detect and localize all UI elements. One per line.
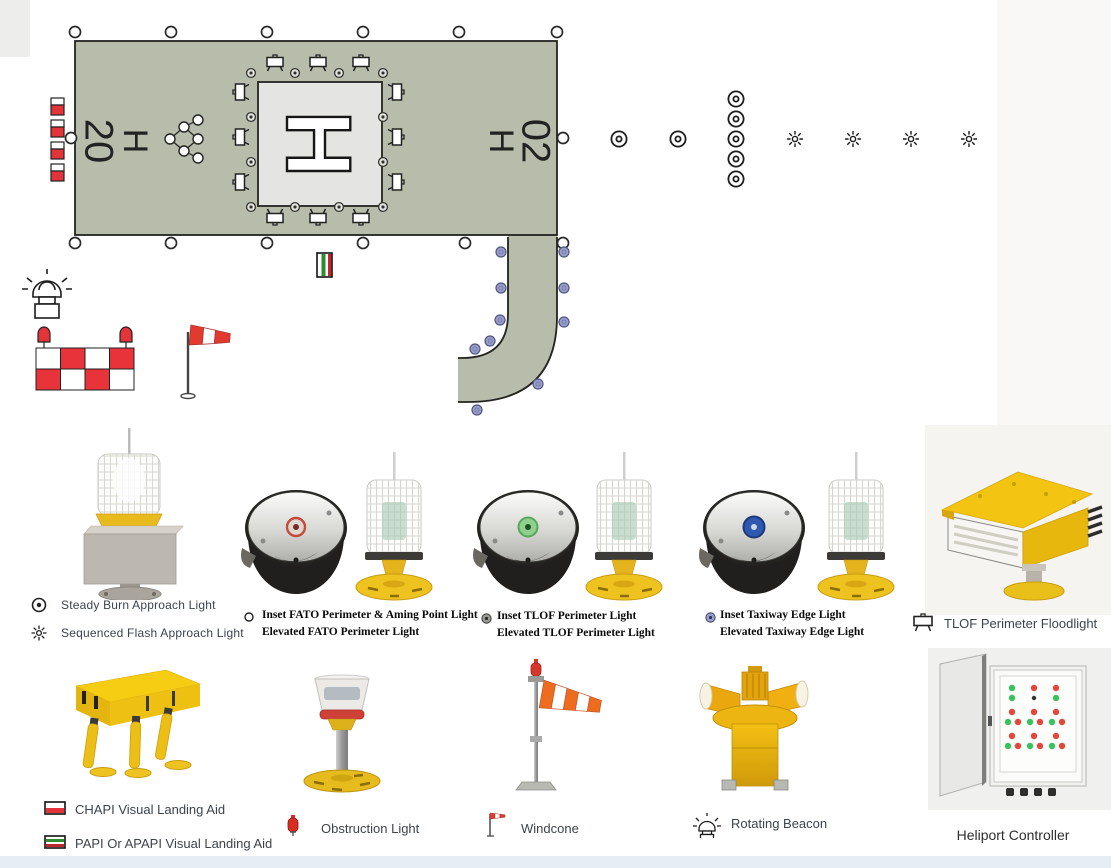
chapi-product-image	[48, 660, 218, 802]
legend-steady-burn: Steady Burn Approach Light	[30, 596, 216, 614]
legend-inset-taxiway-label: Inset Taxiway Edge Light	[720, 609, 846, 621]
tlof-pad: H	[258, 82, 382, 206]
steady-burn-approach-light-icon	[30, 596, 48, 614]
heliport-controller-product-image	[928, 650, 1098, 808]
inset-fato-light-icon	[243, 611, 255, 623]
tlof-floodlight-product-image	[928, 452, 1108, 612]
elevated-taxiway-light-product-image	[814, 452, 898, 604]
heliport-lighting-layout-page: H 20 H H 02	[0, 0, 1111, 868]
papi-unit-plan	[317, 253, 332, 277]
inset-tlof-light-icon	[480, 612, 493, 625]
legend-inset-tlof-label: Inset TLOF Perimeter Light	[497, 610, 636, 622]
floodlight-symbol-icon	[911, 613, 935, 633]
legend-papi-label: PAPI Or APAPI Visual Landing Aid	[75, 836, 272, 851]
elevated-fato-light-product-image	[352, 452, 436, 604]
legend-elevated-tlof-label: Elevated TLOF Perimeter Light	[497, 627, 655, 639]
windcone-product-image	[478, 656, 613, 811]
legend-rotating-beacon-label: Rotating Beacon	[731, 816, 827, 831]
legend-sequenced-flash-label: Sequenced Flash Approach Light	[61, 626, 244, 640]
inset-fato-light-product-image	[236, 478, 356, 604]
rotating-beacon-symbol	[22, 269, 72, 318]
elevated-tlof-light-product-image	[582, 452, 666, 604]
obstruction-light-product-image	[292, 668, 392, 798]
heliport-plan-diagram: H 20 H H 02	[0, 0, 1111, 430]
tlof-h-marking: H	[267, 111, 369, 177]
inset-tlof-light-product-image	[468, 478, 588, 604]
windsock-icon	[486, 810, 506, 840]
legend-chapi-label: CHAPI Visual Landing Aid	[75, 802, 225, 817]
barrier-obstruction-lights	[38, 327, 132, 348]
approach-light-product-image	[50, 428, 210, 600]
chapi-bars-plan	[51, 98, 64, 181]
legend-sequenced-flash: Sequenced Flash Approach Light	[30, 624, 244, 642]
legend-windcone-label: Windcone	[521, 821, 579, 836]
heading-02: 02	[514, 119, 558, 164]
rotating-beacon-icon	[692, 806, 722, 838]
windsock-plan	[181, 325, 231, 398]
heading-h-left: H	[116, 129, 154, 154]
sequenced-flash-approach-light-icon	[30, 624, 48, 642]
rotating-beacon-product-image	[698, 654, 810, 804]
inset-taxiway-light-icon	[704, 611, 717, 624]
obstruction-light-icon	[285, 814, 301, 838]
taxiway-strip	[458, 230, 557, 402]
legend-steady-burn-label: Steady Burn Approach Light	[61, 598, 216, 612]
legend-elevated-taxiway-label: Elevated Taxiway Edge Light	[720, 626, 864, 638]
heading-20: 20	[77, 119, 121, 164]
inset-taxiway-light-product-image	[694, 478, 814, 604]
legend-obstruction-label: Obstruction Light	[321, 821, 419, 836]
legend-heliport-controller-label: Heliport Controller	[928, 827, 1098, 843]
legend-tlof-floodlight-label: TLOF Perimeter Floodlight	[944, 616, 1097, 631]
papi-bar-icon	[44, 835, 66, 849]
chapi-bar-icon	[44, 801, 66, 815]
approach-light-line	[611, 91, 977, 186]
background-band-bottom	[0, 856, 1111, 868]
legend-elevated-fato-label: Elevated FATO Perimeter Light	[262, 626, 419, 638]
legend-inset-fato-label: Inset FATO Perimeter & Aming Point Light	[262, 609, 478, 621]
checkered-barrier	[36, 327, 134, 390]
